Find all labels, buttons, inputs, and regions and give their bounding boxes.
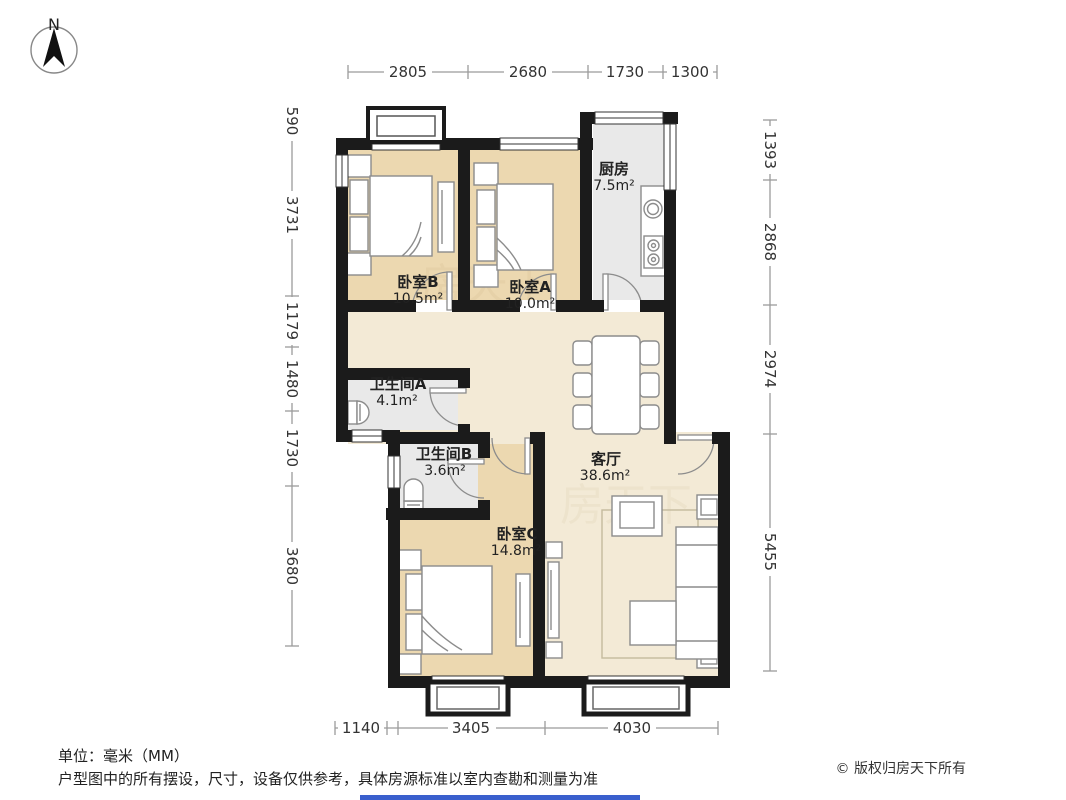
kitchen-label: 厨房 bbox=[599, 160, 629, 178]
bathroom-b-label: 卫生间B bbox=[416, 445, 472, 463]
wall-segment bbox=[478, 500, 490, 508]
wall-segment bbox=[580, 112, 592, 312]
toilet-tank bbox=[348, 401, 357, 424]
wall-segment bbox=[440, 138, 500, 150]
bedroom-a-window bbox=[500, 138, 578, 150]
nightstand bbox=[474, 163, 498, 185]
bedroom-b-area: 10.5m² bbox=[393, 291, 443, 307]
wall-segment bbox=[336, 187, 348, 442]
dim-label: 1480 bbox=[283, 360, 301, 398]
floor-plan-svg: 房天下 房天下 bbox=[0, 0, 1066, 800]
pillow bbox=[406, 574, 422, 610]
living-room-label: 客厅 bbox=[590, 450, 621, 468]
dining-chair bbox=[573, 373, 592, 397]
bathroom-a-area: 4.1m² bbox=[376, 393, 418, 409]
floor-plan-page: 房天下 房天下 bbox=[0, 0, 1066, 800]
dim-label: 1300 bbox=[671, 63, 709, 81]
dining-chair bbox=[573, 341, 592, 365]
kitchen-top-window bbox=[595, 112, 663, 124]
bedroom-c-balcony-inner bbox=[437, 687, 499, 709]
bedroom-a-label: 卧室A bbox=[509, 278, 551, 296]
wall-segment bbox=[664, 190, 676, 444]
bedroom-b-left-window bbox=[336, 155, 348, 187]
dim-label: 3680 bbox=[283, 547, 301, 585]
compass: N bbox=[31, 15, 77, 73]
wall-segment bbox=[478, 444, 490, 458]
bathroom-a-toilet bbox=[348, 401, 369, 424]
dim-label: 1730 bbox=[283, 429, 301, 467]
bedroom-c-area: 14.8m² bbox=[491, 543, 541, 559]
sofa-chaise bbox=[630, 601, 676, 645]
wall-segment bbox=[458, 368, 470, 388]
dining-chair bbox=[573, 405, 592, 429]
wall-segment bbox=[388, 444, 400, 456]
sofa bbox=[676, 527, 718, 659]
dim-label: 2868 bbox=[761, 223, 779, 261]
dining-chair bbox=[640, 373, 659, 397]
wall-segment bbox=[388, 488, 400, 676]
wall-segment bbox=[663, 112, 678, 124]
pillow bbox=[406, 614, 422, 650]
tv-speaker bbox=[546, 642, 562, 658]
wall-segment bbox=[386, 508, 490, 520]
toilet-bowl bbox=[404, 479, 423, 501]
bathroom-a-window bbox=[352, 430, 382, 442]
dining-chair bbox=[640, 405, 659, 429]
armchair-seat bbox=[620, 502, 654, 528]
dining-set bbox=[573, 336, 659, 434]
bathroom-b-toilet bbox=[404, 479, 423, 510]
bottom-accent-bar bbox=[360, 795, 640, 800]
dim-label: 590 bbox=[283, 107, 301, 136]
bedroom-b-label: 卧室B bbox=[397, 273, 438, 291]
dim-label: 2680 bbox=[509, 63, 547, 81]
living-balcony-inner bbox=[593, 687, 679, 709]
dim-label: 1393 bbox=[761, 131, 779, 169]
nightstand bbox=[474, 265, 498, 287]
wardrobe bbox=[438, 182, 454, 252]
tv-speaker bbox=[546, 542, 562, 558]
dim-label: 3731 bbox=[283, 196, 301, 234]
dim-label: 3405 bbox=[452, 719, 490, 737]
nightstand bbox=[347, 253, 371, 275]
dining-chair bbox=[640, 341, 659, 365]
dim-label: 4030 bbox=[613, 719, 651, 737]
bed bbox=[422, 566, 492, 654]
wall-segment bbox=[336, 138, 348, 155]
wall-segment bbox=[530, 432, 545, 444]
pillow bbox=[477, 190, 495, 224]
dim-label: 2805 bbox=[389, 63, 427, 81]
bathroom-b-area: 3.6m² bbox=[424, 463, 466, 479]
nightstand bbox=[399, 550, 421, 570]
pillow bbox=[350, 217, 368, 251]
pillow bbox=[477, 227, 495, 261]
tv-cabinet bbox=[548, 562, 559, 638]
kitchen-right-window bbox=[664, 124, 676, 190]
dining-table bbox=[592, 336, 640, 434]
bed bbox=[370, 176, 432, 256]
bay-window-inner bbox=[377, 116, 435, 136]
bathroom-b-window bbox=[388, 456, 400, 488]
kitchen-area: 7.5m² bbox=[593, 178, 635, 194]
wall-segment bbox=[533, 676, 588, 688]
nightstand bbox=[399, 654, 421, 674]
disclaimer-note: 户型图中的所有摆设，尺寸，设备仅供参考，具体房源标准以室内查勘和测量为准 bbox=[58, 768, 598, 789]
dim-label: 2974 bbox=[761, 350, 779, 388]
wall-segment bbox=[388, 676, 432, 688]
wall-segment bbox=[386, 432, 490, 444]
wall-segment bbox=[533, 444, 545, 676]
wall-segment bbox=[718, 432, 730, 688]
dim-label: 1140 bbox=[342, 719, 380, 737]
dim-label: 1179 bbox=[283, 302, 301, 340]
bedroom-c-label: 卧室C bbox=[496, 525, 537, 543]
copyright-note: © 版权归房天下所有 bbox=[836, 758, 966, 778]
bedroom-a-area: 10.0m² bbox=[505, 296, 555, 312]
living-room-area: 38.6m² bbox=[580, 468, 630, 484]
wardrobe bbox=[516, 574, 530, 646]
nightstand bbox=[347, 155, 371, 177]
dim-label: 5455 bbox=[761, 533, 779, 571]
unit-note: 单位：毫米（MM） bbox=[58, 745, 189, 766]
side-table-top bbox=[701, 499, 717, 515]
wall-segment bbox=[458, 424, 470, 442]
pillow bbox=[350, 180, 368, 214]
dim-label: 1730 bbox=[606, 63, 644, 81]
kitchen-fixtures bbox=[641, 186, 666, 276]
bathroom-a-label: 卫生间A bbox=[370, 375, 427, 393]
wall-segment bbox=[458, 150, 470, 312]
compass-north-label: N bbox=[48, 15, 60, 34]
